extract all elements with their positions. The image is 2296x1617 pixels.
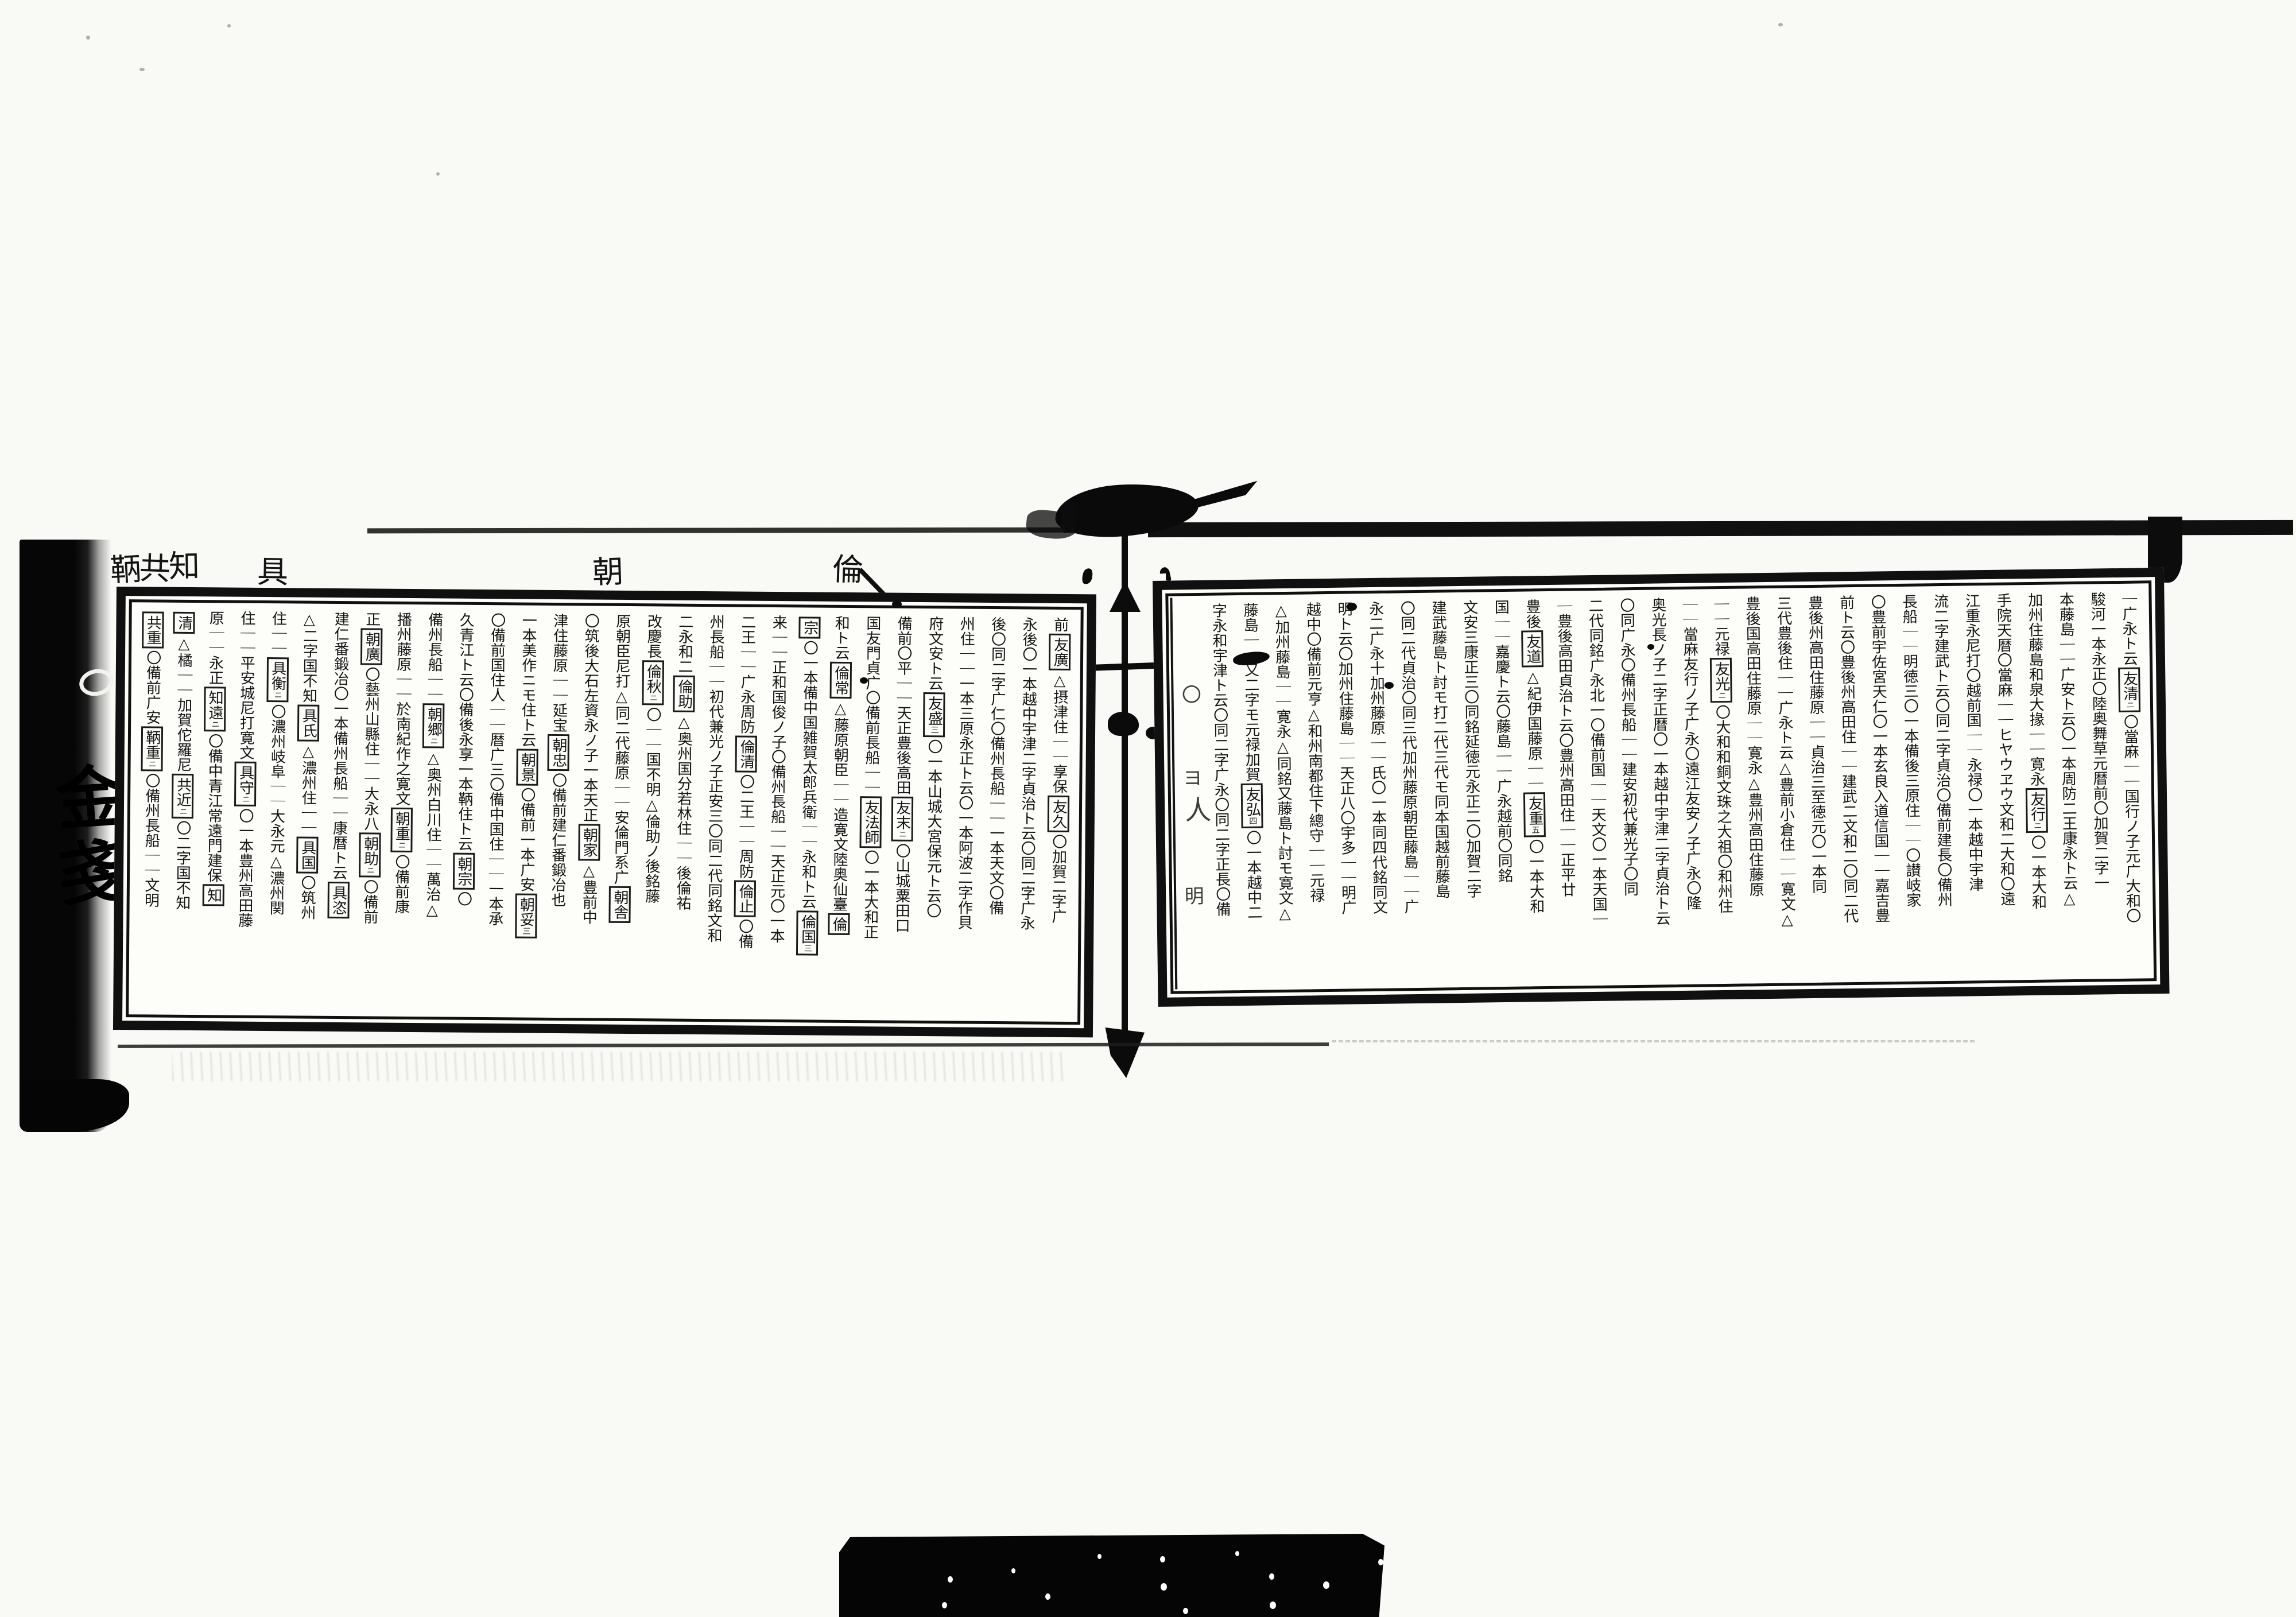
smith-name-box: 倫常 bbox=[829, 662, 852, 699]
text-column: 豊後国高田住藤原｜｜寛永△豊州高田住藤原 bbox=[1744, 596, 1764, 976]
column-cell: 〇同二代貞治〇同三代加州藤原朝臣藤島｜｜广 bbox=[1390, 600, 1426, 981]
text-column: 清△橘｜｜加賀佗羅尼共近ニ〇二字国不知 bbox=[173, 610, 191, 1007]
generation-number: ニ bbox=[178, 807, 187, 815]
ink-dot bbox=[860, 677, 868, 684]
column-cell: 州住｜｜一本三原永正ト云〇一本阿波二字作貝 bbox=[947, 616, 982, 1013]
column-cell: 豊後州高田住藤原｜｜貞治三至徳元〇一本同 bbox=[1798, 595, 1835, 976]
generation-number: ニ bbox=[429, 736, 438, 744]
margin-tag: 知 bbox=[169, 551, 200, 583]
comma-ink-mark bbox=[1081, 567, 1094, 585]
left-page: 前友廣△摂津住｜｜享保友久〇加賀二字广永後〇一本越中宇津二字貞治ト云〇同二字广永… bbox=[113, 587, 1096, 1037]
text-column: 二永和二倫助△奥州国分若林住｜｜後倫祐 bbox=[673, 614, 692, 1011]
column-cell: 住｜｜具衡ニ〇濃州岐阜｜｜大永元△濃州関 bbox=[259, 611, 293, 1008]
smith-name-box: 友清ニ bbox=[2118, 667, 2140, 712]
smith-name-box: 朝家 bbox=[578, 824, 600, 860]
column-cell: 〇筑後大石左資永ノ子一本天正朝家△豊前中 bbox=[572, 613, 606, 1010]
text-column: 州長船｜｜初代兼光ノ子正安三〇同二代同銘文和 bbox=[705, 614, 723, 1011]
smith-name-box: 友末ニ bbox=[891, 797, 913, 842]
column-cell: 〇同广永〇備州長船｜｜建安初代兼光子〇同 bbox=[1610, 598, 1646, 978]
text-column: 長船｜｜明徳三〇一本備後三原住｜｜〇讃岐家 bbox=[1901, 594, 1921, 974]
smith-name-box: 朝宗 bbox=[453, 853, 475, 890]
generation-number: ニ bbox=[1717, 691, 1726, 700]
scan-canvas: 金 戔 ト 鞆 共 知 具 朝 倫 前友廣△摂津住｜｜享保友久〇加賀二字广永後〇… bbox=[0, 0, 2296, 1617]
text-column: 住｜｜具衡ニ〇濃州岐阜｜｜大永元△濃州関 bbox=[267, 611, 285, 1008]
gutter-ink-blot bbox=[1108, 712, 1139, 736]
smith-name-box: 友行ニ bbox=[2026, 788, 2048, 833]
column-cell: 宗〇一本備中国雑賀太郎兵衛｜｜永和ト云倫国三 bbox=[791, 615, 825, 1012]
margin-tag: 朝 bbox=[592, 556, 624, 588]
scanner-black-block bbox=[839, 1534, 1384, 1617]
text-column: 和ト云倫常△藤原朝臣｜｜造寛文陸奥仙臺倫 bbox=[830, 615, 848, 1013]
column-cell: 原｜｜永正知遠ニ〇備中青江常遠門建保知 bbox=[196, 610, 231, 1007]
text-column: ｜豊後高田貞治ト云〇豊州高田住｜｜正平廿 bbox=[1556, 598, 1576, 978]
hashira-mark: ヨ bbox=[1177, 767, 1205, 788]
ink-dot bbox=[1647, 644, 1654, 650]
dust-speck bbox=[139, 68, 145, 71]
hashira-mark: 人 bbox=[1177, 796, 1216, 823]
text-column: 流二字建武ト云〇同二字貞治〇備前建長〇備州 bbox=[1932, 594, 1953, 974]
smith-name-box: 朝妥三 bbox=[515, 893, 537, 939]
smith-name-box: 知 bbox=[202, 885, 224, 906]
generation-number: ニ bbox=[147, 759, 156, 767]
smith-name-box: 具氏 bbox=[297, 704, 320, 741]
smith-name-box: 具衡ニ bbox=[266, 657, 289, 703]
generation-number: 五 bbox=[1530, 825, 1539, 834]
right-page: 〇 ヨ 人 明 ｜广永ト云友清ニ〇當麻｜｜国行ノ子元广大和〇駿河一本永正〇陸奥舞… bbox=[1153, 568, 2170, 1007]
smith-name-box: 朝重ニ bbox=[390, 808, 413, 853]
column-cell: 建武藤島ト討モ打二代三代モ同本国越前藤島 bbox=[1422, 600, 1458, 980]
text-column: 建武藤島ト討モ打二代三代モ同本国越前藤島 bbox=[1430, 600, 1450, 980]
text-column: 原｜｜永正知遠ニ〇備中青江常遠門建保知 bbox=[204, 610, 223, 1007]
text-column: 原朝臣尼打△同二代藤原｜｜安倫門系广朝舎 bbox=[611, 614, 629, 1011]
text-column: 播州藤原｜｜於南紀作之寛文朝重ニ〇備前康 bbox=[392, 612, 410, 1009]
column-cell: △加州藤島｜｜寛永△同銘又藤島ト討モ寛文△ bbox=[1265, 602, 1301, 983]
smith-name-box: 知遠ニ bbox=[204, 687, 226, 732]
text-column: ｜广永ト云友清ニ〇當麻｜｜国行ノ子元广大和〇 bbox=[2120, 591, 2141, 971]
column-cell: 明ト云〇加州住藤島｜｜天正八〇宇多｜｜明广 bbox=[1328, 601, 1364, 982]
text-column: 手院天暦〇當麻｜｜ヒヤウヱウ文和二大和〇遠 bbox=[1995, 592, 2015, 972]
bottom-dust-band bbox=[172, 1052, 1068, 1081]
column-cell: 豊後国高田住藤原｜｜寛永△豊州高田住藤原 bbox=[1736, 596, 1772, 976]
smith-name-box: 倫止 bbox=[734, 880, 757, 917]
gutter-ink-wedge bbox=[1101, 1027, 1145, 1078]
column-cell: 流二字建武ト云〇同二字貞治〇備前建長〇備州 bbox=[1924, 594, 1960, 974]
dust-speck bbox=[86, 36, 90, 40]
text-column: 永二广永十加州藤原｜｜氏〇一本同四代銘同文 bbox=[1367, 601, 1388, 981]
text-column: ｜｜元禄友光ニ〇大和和銅文珠之大祖〇和州住 bbox=[1712, 596, 1733, 976]
column-cell: 後〇同二字广仁〇備州長船｜｜一本天文〇備 bbox=[979, 616, 1013, 1014]
column-cell: 播州藤原｜｜於南紀作之寛文朝重ニ〇備前康 bbox=[384, 612, 418, 1009]
ink-tick bbox=[1062, 503, 1076, 533]
text-column: 宗〇一本備中国雑賀太郎兵衛｜｜永和ト云倫国三 bbox=[798, 615, 817, 1012]
text-column: 駿河一本永正〇陸奥舞草元暦前〇加賀二字一 bbox=[2089, 591, 2109, 971]
text-column: 二王｜｜广永周防倫清〇二王｜｜周防倫止〇備 bbox=[736, 615, 754, 1012]
generation-number: ニ bbox=[210, 720, 219, 728]
smith-name-box: 朝廣 bbox=[360, 628, 383, 665]
text-column: 来｜｜正和国俊ノ子〇備州長船｜｜天正元〇一本 bbox=[767, 615, 786, 1012]
column-cell: 清△橘｜｜加賀佗羅尼共近ニ〇二字国不知 bbox=[165, 610, 200, 1007]
smith-name-box: 共近ニ bbox=[172, 774, 194, 819]
ink-dot bbox=[1384, 682, 1394, 689]
text-column: 国｜｜嘉慶ト云〇藤島｜｜广永越前〇同銘 bbox=[1492, 599, 1513, 979]
gutter-cross-mark bbox=[1088, 662, 1155, 671]
column-cell: 和ト云倫常△藤原朝臣｜｜造寛文陸奥仙臺倫 bbox=[822, 615, 856, 1013]
column-cell: 住｜｜平安城尼打寛文具守ニ〇一本豊州高田藤 bbox=[228, 611, 262, 1008]
text-column: 国友門貞广〇備前長船｜｜友法師〇一本大和正 bbox=[861, 615, 879, 1013]
text-column: 前友廣△摂津住｜｜享保友久〇加賀二字广 bbox=[1049, 617, 1067, 1014]
text-column: 〇同二代貞治〇同三代加州藤原朝臣藤島｜｜广 bbox=[1398, 600, 1419, 980]
margin-tag: 具 bbox=[257, 557, 289, 588]
text-column: 字永和宇津ト云〇同二字广永〇同二字正長〇備 bbox=[1210, 603, 1231, 983]
smith-name-box: 友盛三 bbox=[923, 692, 945, 738]
column-cell: 奥光長ノ子二字正暦〇一本越中宇津二字貞治ト云 bbox=[1642, 597, 1678, 978]
text-column: △加州藤島｜｜寛永△同銘又藤島ト討モ寛文△ bbox=[1273, 602, 1294, 982]
column-cell: 津住藤原｜｜延宝朝忠〇備前建仁番鍛冶也 bbox=[541, 613, 575, 1010]
black-block-specks bbox=[1011, 1568, 1015, 1573]
column-cell: ｜｜當麻友行ノ子广永〇遠江友安ノ子广永〇隆 bbox=[1673, 596, 1709, 977]
column-cell: 府文安ト云友盛三〇一本山城大宮保元ト云〇 bbox=[916, 616, 951, 1013]
gutter-arrowhead-icon bbox=[1110, 581, 1141, 612]
column-cell: 三代豊後住｜｜广永ト云△豊前小倉住｜｜寛文△ bbox=[1767, 595, 1803, 976]
smith-name-box: 友久 bbox=[1048, 796, 1070, 832]
generation-number: ニ bbox=[397, 841, 406, 849]
dust-speck bbox=[436, 172, 440, 176]
text-column: 二代同銘广永北一〇備前国｜｜天文〇一本天国｜ bbox=[1587, 598, 1607, 978]
text-column: 加州住藤島和泉大掾｜｜寛永友行ニ〇一本大和 bbox=[2026, 592, 2047, 972]
smith-name-box: 鞆重ニ bbox=[141, 726, 163, 771]
column-cell: 〇豊前宇佐宮天仁〇一本玄良入道信国｜｜嘉吉豊 bbox=[1861, 594, 1897, 975]
column-cell: △二字国不知具氏△濃州住｜｜具国〇筑州 bbox=[290, 611, 325, 1008]
column-cell: 二代同銘广永北一〇備前国｜｜天文〇一本天国｜ bbox=[1578, 598, 1615, 979]
smith-name-box: 友光ニ bbox=[1710, 658, 1732, 703]
text-column: 豊後友道△紀伊国藤原｜｜友重五〇一本大和 bbox=[1524, 599, 1545, 979]
column-cell: ｜豊後高田貞治ト云〇豊州高田住｜｜正平廿 bbox=[1548, 598, 1584, 979]
generation-number: 三 bbox=[929, 726, 938, 734]
ink-dot bbox=[892, 600, 902, 608]
column-cell: 越中〇備前元亨△和州南都住下總守｜｜元禄 bbox=[1296, 602, 1332, 982]
generation-number: ニ bbox=[241, 795, 250, 803]
column-cell: 文安三康正三〇同銘延徳元永正二〇加賀二字 bbox=[1453, 599, 1490, 980]
text-column: 本藤島｜｜广安ト云〇一本周防二王康永ト云△ bbox=[2057, 592, 2078, 972]
smith-name-box: 清 bbox=[173, 612, 195, 634]
text-column: 備前〇平｜｜天正豊後高田友末ニ〇山城粟田口 bbox=[893, 616, 911, 1013]
hashira-mark: 明 bbox=[1178, 886, 1207, 906]
smith-name-box: 具守ニ bbox=[234, 762, 257, 807]
column-cell: 加州住藤島和泉大掾｜｜寛永友行ニ〇一本大和 bbox=[2018, 592, 2054, 973]
text-column: 明ト云〇加州住藤島｜｜天正八〇宇多｜｜明广 bbox=[1336, 601, 1356, 981]
smith-name-box: 朝郷ニ bbox=[422, 703, 445, 749]
text-column: 住｜｜平安城尼打寛文具守ニ〇一本豊州高田藤 bbox=[235, 611, 254, 1008]
column-cell: 国友門貞广〇備前長船｜｜友法師〇一本大和正 bbox=[854, 615, 888, 1013]
column-cell: 建仁番鍛冶〇一本備州長船｜｜康暦ト云具恣 bbox=[321, 611, 356, 1009]
column-cell: 〇備前国住人｜｜暦广三〇備中国住｜｜一本承 bbox=[478, 612, 513, 1010]
smith-name-box: 倫秋ニ bbox=[642, 660, 664, 705]
text-column: 〇筑後大石左資永ノ子一本天正朝家△豊前中 bbox=[580, 613, 598, 1010]
smith-name-box: 倫清 bbox=[735, 735, 758, 772]
generation-number: ニ bbox=[2033, 821, 2042, 830]
column-cell: 本藤島｜｜广安ト云〇一本周防二王康永ト云△ bbox=[2049, 592, 2085, 972]
text-column: 〇豊前宇佐宮天仁〇一本玄良入道信国｜｜嘉吉豊 bbox=[1869, 594, 1890, 974]
column-cell: 備前〇平｜｜天正豊後高田友末ニ〇山城粟田口 bbox=[885, 616, 919, 1013]
dust-speck bbox=[227, 24, 231, 28]
smith-name-box: 友廣 bbox=[1049, 634, 1071, 670]
smith-name-box: 共重 bbox=[142, 611, 164, 648]
smith-name-box: 朝助ニ bbox=[359, 832, 381, 878]
text-column: △二字国不知具氏△濃州住｜｜具国〇筑州 bbox=[298, 611, 316, 1009]
smith-name-box: 朝景 bbox=[516, 749, 538, 785]
generation-number: 三 bbox=[802, 944, 812, 952]
text-column: 江重永尼打〇越前国｜｜永禄〇一本越中宇津 bbox=[1963, 593, 1984, 973]
column-cell: 豊後友道△紀伊国藤原｜｜友重五〇一本大和 bbox=[1516, 599, 1552, 979]
smith-name-box: 具国 bbox=[296, 836, 319, 873]
column-cell: 州長船｜｜初代兼光ノ子正安三〇同二代同銘文和 bbox=[697, 614, 731, 1011]
right-page-columns: ｜广永ト云友清ニ〇當麻｜｜国行ノ子元广大和〇駿河一本永正〇陸奥舞草元暦前〇加賀二… bbox=[1199, 585, 2152, 989]
text-column: 府文安ト云友盛三〇一本山城大宮保元ト云〇 bbox=[924, 616, 942, 1013]
column-cell: 正朝廣〇藝州山縣住｜｜大永八朝助ニ〇備前 bbox=[353, 611, 387, 1009]
smith-name-box: 倫助 bbox=[673, 676, 696, 712]
text-column: 正朝廣〇藝州山縣住｜｜大永八朝助ニ〇備前 bbox=[360, 611, 379, 1009]
text-column: 久青江ト云〇備後永享一本鞆住ト云朝宗〇 bbox=[455, 612, 473, 1010]
text-column: 建仁番鍛冶〇一本備州長船｜｜康暦ト云具恣 bbox=[329, 611, 348, 1009]
hashira-strip: 〇 ヨ 人 明 bbox=[1170, 598, 1204, 990]
text-column: 州住｜｜一本三原永正ト云〇一本阿波二字作貝 bbox=[955, 616, 974, 1014]
smith-name-box: 具恣 bbox=[327, 882, 350, 918]
smith-name-box: 友法師 bbox=[860, 796, 882, 848]
column-cell: 永後〇一本越中宇津二字貞治ト云〇同二字广永 bbox=[1010, 616, 1044, 1014]
column-cell: 改慶長倫秋ニ〇｜｜国不明△倫助ノ後銘藤 bbox=[634, 614, 669, 1011]
column-cell: 二王｜｜广永周防倫清〇二王｜｜周防倫止〇備 bbox=[728, 614, 763, 1011]
column-cell: 一本美作ニモ住ト云朝景〇備前一本广安朝妥三 bbox=[509, 612, 544, 1010]
text-column: 備州長船｜｜朝郷ニ△奥州白川住｜｜萬治△ bbox=[423, 612, 441, 1009]
text-column: 文安三康正三〇同銘延徳元永正二〇加賀二字 bbox=[1461, 600, 1482, 980]
book-cover-edge-foot bbox=[23, 1079, 129, 1132]
left-page-inner: 前友廣△摂津住｜｜享保友久〇加賀二字广永後〇一本越中宇津二字貞治ト云〇同二字广永… bbox=[130, 604, 1079, 1020]
generation-number: ニ bbox=[897, 830, 906, 838]
right-page-inner: 〇 ヨ 人 明 ｜广永ト云友清ニ〇當麻｜｜国行ノ子元广大和〇駿河一本永正〇陸奥舞… bbox=[1170, 585, 2152, 989]
column-cell: 国｜｜嘉慶ト云〇藤島｜｜广永越前〇同銘 bbox=[1484, 599, 1521, 980]
text-column: 共重〇備前广安鞆重ニ〇備州長船｜｜文明 bbox=[142, 610, 160, 1007]
text-column: 奥光長ノ子二字正暦〇一本越中宇津二字貞治ト云 bbox=[1650, 597, 1670, 977]
smith-name-box: 友道 bbox=[1522, 630, 1544, 667]
smith-name-box: 朝忠 bbox=[548, 734, 570, 771]
column-cell: 手院天暦〇當麻｜｜ヒヤウヱウ文和二大和〇遠 bbox=[1987, 592, 2023, 973]
column-cell: 久青江ト云〇備後永享一本鞆住ト云朝宗〇 bbox=[447, 612, 481, 1010]
text-column: 後〇同二字广仁〇備州長船｜｜一本天文〇備 bbox=[986, 616, 1004, 1014]
smith-name-box: 友重五 bbox=[1523, 792, 1546, 837]
column-cell: 前ト云〇豊後州高田住｜｜建武二文和二〇同二代 bbox=[1830, 595, 1866, 975]
margin-tag: 共 bbox=[139, 553, 171, 585]
text-column: 豊後州高田住藤原｜｜貞治三至徳元〇一本同 bbox=[1806, 595, 1827, 975]
generation-number: ニ bbox=[648, 693, 657, 701]
text-column: 津住藤原｜｜延宝朝忠〇備前建仁番鍛冶也 bbox=[548, 613, 567, 1010]
generation-number: ニ bbox=[273, 691, 282, 699]
text-column: 三代豊後住｜｜广永ト云△豊前小倉住｜｜寛文△ bbox=[1775, 595, 1795, 975]
generation-number: ニ bbox=[2125, 701, 2134, 709]
generation-number: 三 bbox=[521, 927, 530, 935]
text-column: 〇備前国住人｜｜暦广三〇備中国住｜｜一本承 bbox=[486, 612, 504, 1010]
sheet-edge-line-thick bbox=[1148, 520, 2293, 537]
text-column: 一本美作ニモ住ト云朝景〇備前一本广安朝妥三 bbox=[517, 613, 536, 1010]
margin-tag: 鞆 bbox=[110, 554, 142, 587]
left-page-columns: 前友廣△摂津住｜｜享保友久〇加賀二字广永後〇一本越中宇津二字貞治ト云〇同二字广永… bbox=[130, 604, 1079, 1020]
text-column: 改慶長倫秋ニ〇｜｜国不明△倫助ノ後銘藤 bbox=[642, 614, 661, 1011]
column-cell: 原朝臣尼打△同二代藤原｜｜安倫門系广朝舎 bbox=[603, 614, 638, 1011]
text-column: 前ト云〇豊後州高田住｜｜建武二文和二〇同二代 bbox=[1838, 595, 1859, 975]
column-cell: 永二广永十加州藤原｜｜氏〇一本同四代銘同文 bbox=[1359, 601, 1395, 982]
smith-name-box: 倫国三 bbox=[796, 910, 819, 956]
smith-name-box: 朝舎 bbox=[609, 886, 631, 923]
generation-number: 四 bbox=[1248, 817, 1257, 825]
smith-name-box: 倫 bbox=[828, 913, 850, 935]
column-cell: 二永和二倫助△奥州国分若林住｜｜後倫祐 bbox=[666, 614, 700, 1011]
column-cell: 江重永尼打〇越前国｜｜永禄〇一本越中宇津 bbox=[1955, 593, 1991, 974]
column-cell: ｜广永ト云友清ニ〇當麻｜｜国行ノ子元广大和〇 bbox=[2112, 591, 2148, 971]
gutter-arrow-line bbox=[1122, 536, 1128, 1050]
dust-speck bbox=[1778, 23, 1783, 26]
column-cell: 来｜｜正和国俊ノ子〇備州長船｜｜天正元〇一本 bbox=[759, 615, 794, 1012]
column-cell: ｜｜元禄友光ニ〇大和和銅文珠之大祖〇和州住 bbox=[1704, 596, 1740, 977]
text-column: 永後〇一本越中宇津二字貞治ト云〇同二字广永 bbox=[1018, 616, 1036, 1014]
column-cell: 駿河一本永正〇陸奥舞草元暦前〇加賀二字一 bbox=[2081, 591, 2117, 972]
column-cell: 備州長船｜｜朝郷ニ△奥州白川住｜｜萬治△ bbox=[416, 612, 450, 1009]
sheet-bottom-line bbox=[118, 1042, 1329, 1048]
text-column: ｜｜當麻友行ノ子广永〇遠江友安ノ子广永〇隆 bbox=[1681, 597, 1701, 977]
text-column: 〇同广永〇備州長船｜｜建安初代兼光子〇同 bbox=[1618, 598, 1639, 978]
ink-dot bbox=[1347, 603, 1357, 611]
generation-number: ニ bbox=[365, 866, 374, 874]
sheet-bottom-line-faint bbox=[1332, 1040, 1975, 1042]
smith-name-box: 宗 bbox=[799, 616, 821, 638]
ink-blot-spike bbox=[1188, 481, 1260, 510]
column-cell: 前友廣△摂津住｜｜享保友久〇加賀二字广 bbox=[1041, 617, 1076, 1014]
smith-name-box: 友弘四 bbox=[1241, 784, 1263, 829]
column-cell: 共重〇備前广安鞆重ニ〇備州長船｜｜文明 bbox=[134, 610, 168, 1007]
text-column: 越中〇備前元亨△和州南都住下總守｜｜元禄 bbox=[1304, 602, 1325, 982]
column-cell: 長船｜｜明徳三〇一本備後三原住｜｜〇讃岐家 bbox=[1892, 594, 1929, 974]
